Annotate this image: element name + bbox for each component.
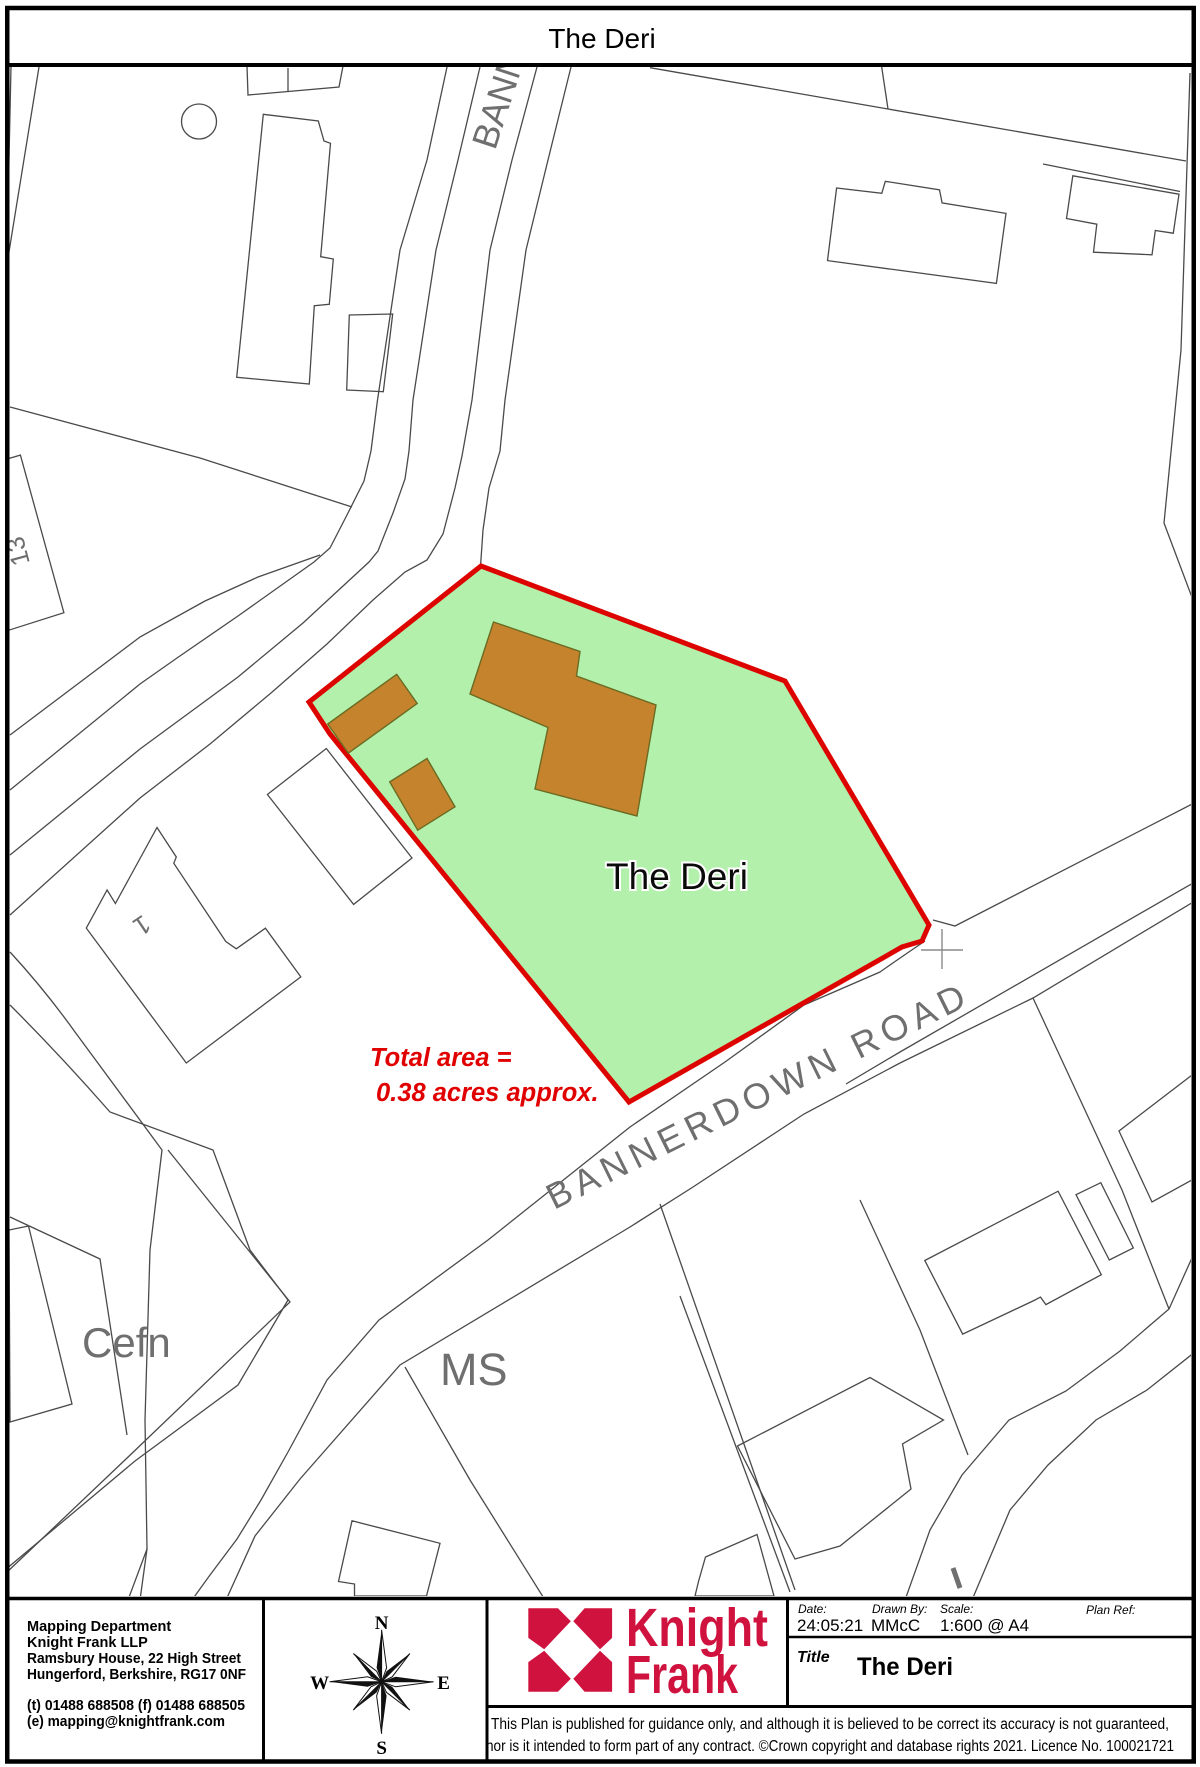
svg-text:Mapping Department: Mapping Department	[27, 1619, 171, 1635]
svg-text:The Deri: The Deri	[548, 23, 655, 54]
svg-text:0.38 acres approx.: 0.38 acres approx.	[376, 1079, 599, 1107]
svg-text:S: S	[376, 1738, 387, 1759]
svg-text:Drawn By:: Drawn By:	[872, 1602, 927, 1616]
svg-text:Title: Title	[797, 1649, 830, 1666]
svg-text:Scale:: Scale:	[940, 1602, 973, 1616]
svg-text:nor is it intended to form par: nor is it intended to form part of any c…	[486, 1738, 1174, 1755]
svg-text:Date:: Date:	[798, 1602, 827, 1616]
svg-text:(e) mapping@knightfrank.com: (e) mapping@knightfrank.com	[27, 1714, 225, 1730]
svg-text:Knight Frank LLP: Knight Frank LLP	[27, 1635, 148, 1651]
svg-text:24:05:21: 24:05:21	[797, 1616, 863, 1635]
svg-text:MS: MS	[440, 1344, 508, 1395]
svg-text:Cefn: Cefn	[82, 1319, 171, 1366]
svg-text:Hungerford, Berkshire, RG17 0N: Hungerford, Berkshire, RG17 0NF	[27, 1667, 246, 1683]
svg-text:Frank: Frank	[626, 1645, 739, 1705]
svg-text:W: W	[310, 1673, 329, 1694]
svg-text:Ramsbury House, 22 High Street: Ramsbury House, 22 High Street	[27, 1651, 241, 1667]
svg-text:This Plan is published for gui: This Plan is published for guidance only…	[491, 1716, 1169, 1733]
svg-text:E: E	[437, 1673, 450, 1694]
svg-text:Plan Ref:: Plan Ref:	[1086, 1603, 1135, 1617]
svg-text:The Deri: The Deri	[606, 856, 748, 897]
svg-text:1:600 @ A4: 1:600 @ A4	[940, 1616, 1029, 1635]
svg-text:MMcC: MMcC	[871, 1616, 920, 1635]
svg-text:N: N	[375, 1613, 389, 1634]
svg-text:(t) 01488 688508 (f) 01488 688: (t) 01488 688508 (f) 01488 688505	[27, 1698, 245, 1714]
svg-text:The Deri: The Deri	[857, 1653, 953, 1681]
svg-text:Total area =: Total area =	[370, 1044, 512, 1072]
